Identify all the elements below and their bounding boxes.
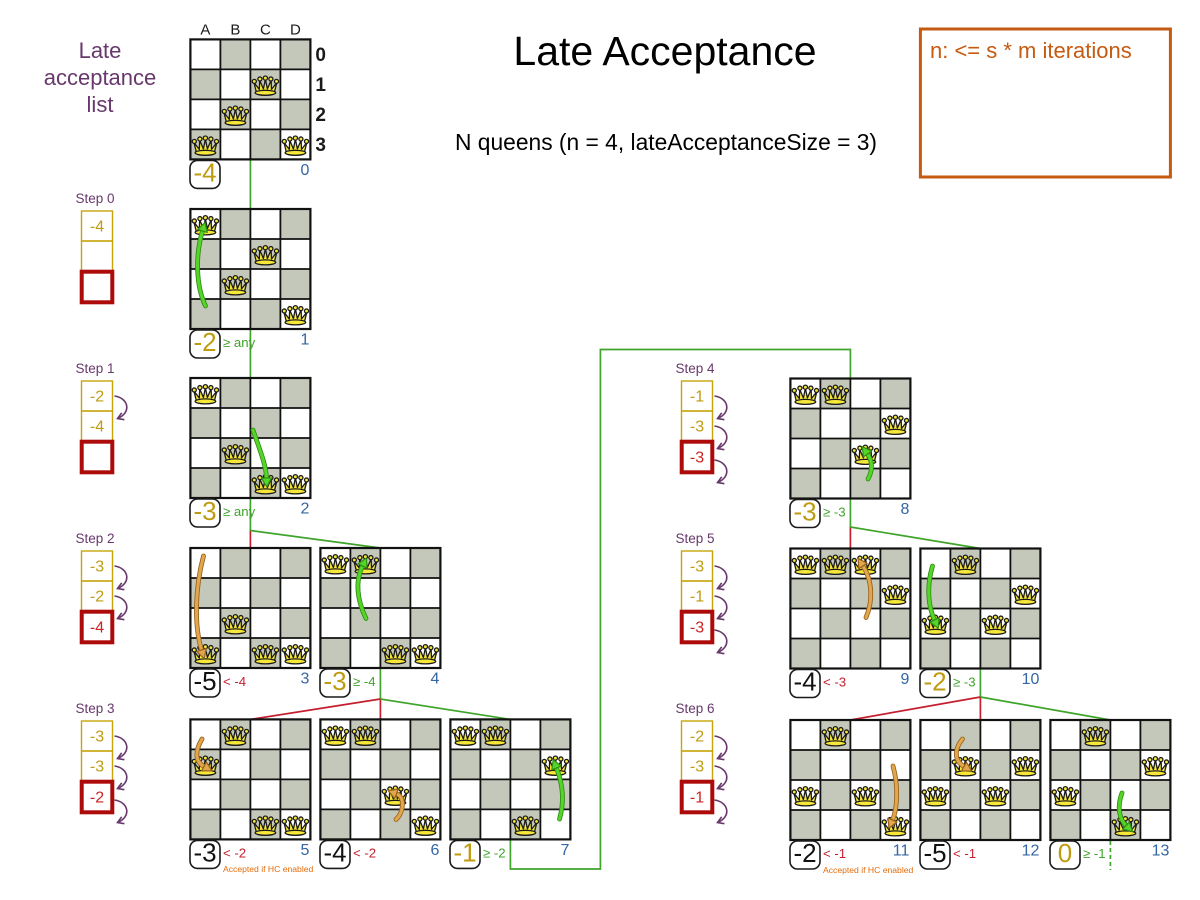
svg-text:-4: -4: [323, 837, 346, 867]
svg-text:-4: -4: [90, 620, 104, 637]
svg-text:-5: -5: [193, 666, 216, 696]
svg-text:-3: -3: [690, 559, 704, 576]
svg-text:Step 6: Step 6: [675, 701, 714, 716]
svg-text:4: 4: [430, 671, 439, 688]
svg-text:Accepted if HC enabled: Accepted if HC enabled: [823, 865, 914, 875]
svg-text:Step 3: Step 3: [75, 701, 114, 716]
svg-text:Step 4: Step 4: [675, 361, 715, 376]
svg-text:-1: -1: [690, 589, 704, 606]
svg-text:-5: -5: [923, 838, 946, 868]
svg-text:A: A: [200, 22, 210, 39]
svg-text:B: B: [230, 22, 240, 39]
svg-text:-2: -2: [793, 838, 816, 868]
svg-text:9: 9: [900, 671, 909, 688]
svg-text:1: 1: [300, 332, 309, 349]
svg-text:6: 6: [430, 842, 439, 859]
svg-text:≥ any: ≥ any: [223, 335, 256, 350]
svg-text:1: 1: [315, 75, 326, 96]
svg-text:7: 7: [560, 842, 569, 859]
svg-text:-4: -4: [193, 157, 216, 187]
svg-text:-3: -3: [193, 496, 216, 526]
svg-text:acceptance: acceptance: [44, 65, 157, 90]
svg-text:-3: -3: [690, 419, 704, 436]
svg-text:11: 11: [893, 843, 910, 860]
svg-text:n: <= s * m iterations: n: <= s * m iterations: [930, 38, 1132, 63]
svg-text:-4: -4: [90, 419, 104, 436]
svg-text:≥ -3: ≥ -3: [823, 505, 846, 520]
svg-text:-3: -3: [690, 759, 704, 776]
svg-text:< -2: < -2: [353, 845, 376, 860]
svg-text:N queens (n = 4, lateAcceptanc: N queens (n = 4, lateAcceptanceSize = 3): [455, 129, 877, 155]
svg-text:0: 0: [1058, 838, 1072, 868]
svg-text:< -1: < -1: [823, 846, 846, 861]
svg-text:0: 0: [300, 162, 309, 179]
svg-text:-1: -1: [690, 389, 704, 406]
svg-text:12: 12: [1022, 843, 1040, 860]
svg-text:3: 3: [315, 135, 326, 156]
svg-text:Accepted if HC enabled: Accepted if HC enabled: [223, 864, 314, 874]
svg-text:list: list: [87, 92, 114, 117]
svg-text:≥ any: ≥ any: [223, 504, 256, 519]
svg-text:Step 1: Step 1: [75, 361, 114, 376]
svg-text:< -2: < -2: [223, 845, 246, 860]
svg-text:-3: -3: [90, 559, 104, 576]
svg-text:C: C: [260, 22, 271, 39]
svg-text:8: 8: [900, 501, 909, 518]
svg-text:D: D: [290, 22, 301, 39]
svg-text:Late: Late: [79, 38, 122, 63]
svg-text:-3: -3: [793, 497, 816, 527]
svg-text:-3: -3: [690, 450, 704, 467]
svg-text:13: 13: [1152, 843, 1170, 860]
svg-text:≥ -3: ≥ -3: [953, 675, 976, 690]
svg-text:-2: -2: [90, 790, 104, 807]
svg-text:-3: -3: [690, 620, 704, 637]
svg-text:-4: -4: [793, 667, 816, 697]
svg-text:-3: -3: [323, 666, 346, 696]
svg-text:-1: -1: [690, 790, 704, 807]
svg-text:-3: -3: [90, 729, 104, 746]
svg-text:-2: -2: [90, 389, 104, 406]
svg-text:10: 10: [1022, 671, 1040, 688]
svg-text:≥ -1: ≥ -1: [1083, 846, 1106, 861]
svg-text:≥ -2: ≥ -2: [483, 845, 506, 860]
svg-text:Late Acceptance: Late Acceptance: [513, 28, 816, 74]
svg-text:-2: -2: [690, 729, 704, 746]
svg-text:< -3: < -3: [823, 675, 846, 690]
svg-text:-4: -4: [90, 219, 104, 236]
svg-text:-2: -2: [193, 327, 216, 357]
svg-text:Step 5: Step 5: [675, 531, 714, 546]
svg-text:2: 2: [315, 105, 326, 126]
svg-text:-3: -3: [193, 837, 216, 867]
svg-text:≥ -4: ≥ -4: [353, 674, 376, 689]
svg-text:-2: -2: [923, 667, 946, 697]
svg-text:-3: -3: [90, 759, 104, 776]
svg-text:5: 5: [300, 842, 309, 859]
svg-text:0: 0: [315, 45, 326, 66]
svg-text:3: 3: [300, 671, 309, 688]
svg-text:2: 2: [300, 501, 309, 518]
svg-text:-1: -1: [453, 837, 476, 867]
svg-text:Step 2: Step 2: [75, 531, 114, 546]
svg-text:-2: -2: [90, 589, 104, 606]
svg-text:< -1: < -1: [953, 846, 976, 861]
svg-text:< -4: < -4: [223, 674, 246, 689]
svg-text:Step 0: Step 0: [75, 191, 114, 206]
